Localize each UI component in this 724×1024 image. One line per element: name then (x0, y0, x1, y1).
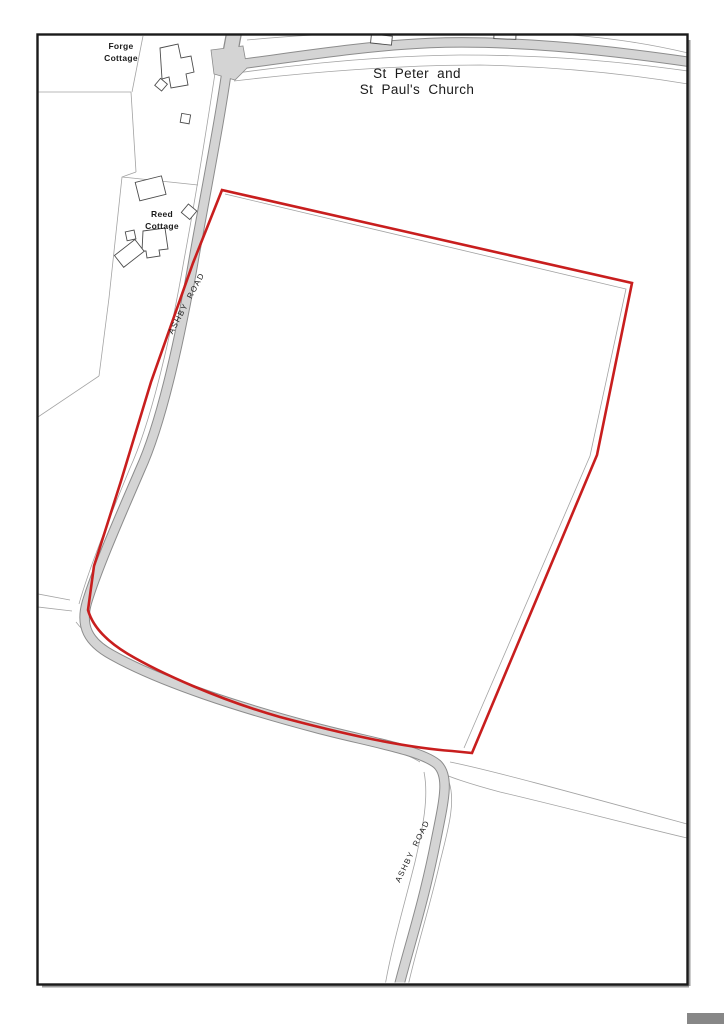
label-church-line1: St Peter and (373, 66, 461, 81)
building-outbuilding (180, 113, 190, 123)
label-forge-cottage-line1: Forge (108, 41, 133, 51)
scrollbar-thumb[interactable] (687, 1013, 724, 1024)
label-forge-cottage-line2: Cottage (104, 53, 138, 63)
label-church-line2: St Paul's Church (360, 82, 475, 97)
site-plan-map: Forge Cottage Reed Cottage St Peter and … (0, 0, 724, 1024)
site-plan-page: Forge Cottage Reed Cottage St Peter and … (0, 0, 724, 1024)
label-reed-cottage-line1: Reed (151, 209, 173, 219)
page-background (0, 0, 724, 1024)
label-reed-cottage-line2: Cottage (145, 221, 179, 231)
building-outbuilding (125, 230, 136, 241)
